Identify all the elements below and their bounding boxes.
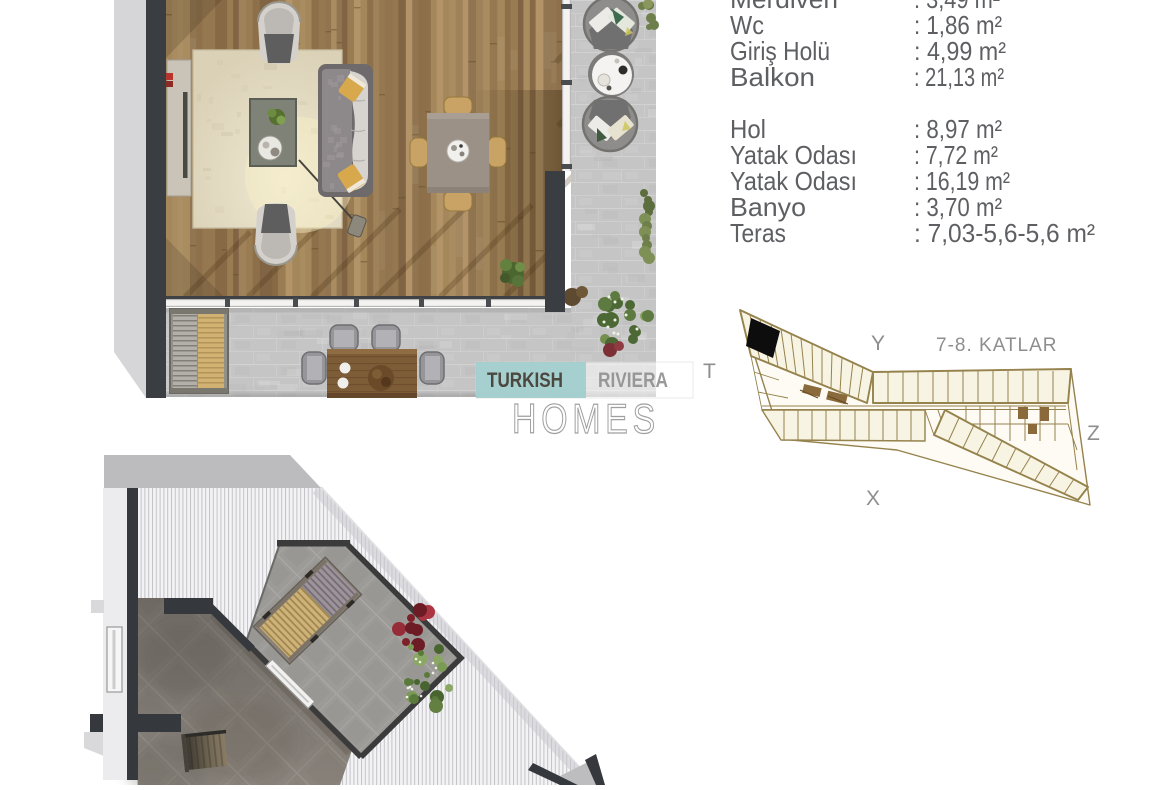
svg-text:7-8. KATLAR: 7-8. KATLAR bbox=[936, 335, 1058, 356]
svg-text:HOMES: HOMES bbox=[512, 395, 660, 442]
svg-text:: 7,03-5,6-5,6 m²: : 7,03-5,6-5,6 m² bbox=[914, 218, 1095, 248]
svg-text:Balkon: Balkon bbox=[730, 62, 815, 92]
svg-text:RIVIERA: RIVIERA bbox=[598, 369, 668, 392]
svg-text:Y: Y bbox=[871, 332, 885, 355]
svg-text:X: X bbox=[866, 487, 880, 510]
svg-text:TURKISH: TURKISH bbox=[487, 369, 563, 392]
svg-text:Teras: Teras bbox=[730, 218, 786, 248]
svg-text:Z: Z bbox=[1087, 422, 1100, 445]
svg-text:T: T bbox=[703, 360, 716, 383]
svg-text:: 21,13 m²: : 21,13 m² bbox=[914, 62, 1004, 92]
